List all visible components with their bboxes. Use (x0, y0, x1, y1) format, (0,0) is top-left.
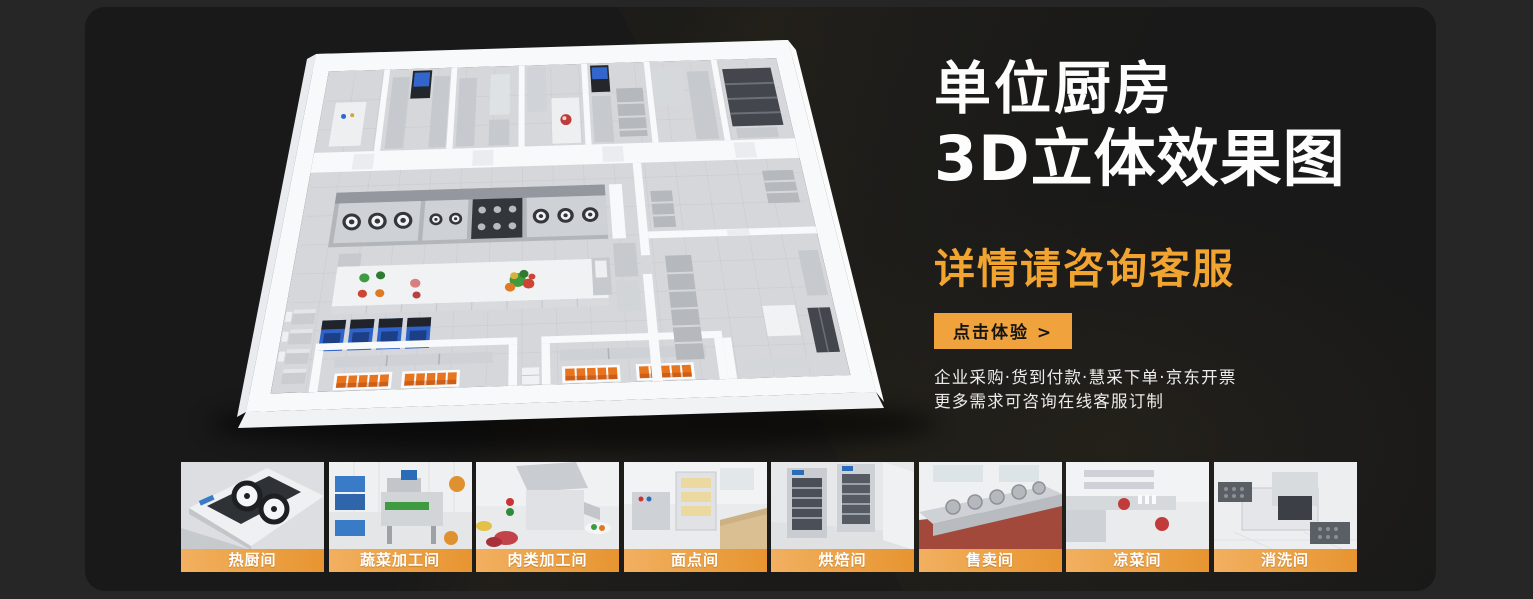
washing-room-art (1214, 462, 1357, 550)
meat-processing-art (476, 462, 619, 550)
thumbnail-label: 售卖间 (919, 549, 1062, 572)
thumbnail-sales-room[interactable]: 售卖间 (919, 462, 1062, 572)
cta-button[interactable]: 点击体验 > (934, 313, 1072, 349)
thumbnail-vegetable-processing[interactable]: 蔬菜加工间 (329, 462, 472, 572)
hero-bullet-line2: 更多需求可咨询在线客服订制 (934, 390, 1414, 414)
hero-bullets: 企业采购·货到付款·慧采下单·京东开票 更多需求可咨询在线客服订制 (934, 366, 1414, 414)
baking-room-art (771, 462, 914, 550)
thumbnail-label: 肉类加工间 (476, 549, 619, 572)
thumbnail-label: 面点间 (624, 549, 767, 572)
room-thumbnail-row: 热厨间 蔬菜加工间 (181, 462, 1357, 572)
thumbnail-label: 热厨间 (181, 549, 324, 572)
thumbnail-label: 蔬菜加工间 (329, 549, 472, 572)
cold-dish-room-art (1066, 462, 1209, 550)
thumbnail-cold-dish-room[interactable]: 凉菜间 (1066, 462, 1209, 572)
hero-title-line1: 单位厨房 (934, 58, 1414, 122)
thumbnail-label: 凉菜间 (1066, 549, 1209, 572)
thumbnail-label: 消洗间 (1214, 549, 1357, 572)
thumbnail-label: 烘焙间 (771, 549, 914, 572)
thumbnail-baking-room[interactable]: 烘焙间 (771, 462, 914, 572)
thumbnail-pastry-room[interactable]: 面点间 (624, 462, 767, 572)
sales-room-art (919, 462, 1062, 550)
pastry-room-art (624, 462, 767, 550)
thumbnail-hot-kitchen[interactable]: 热厨间 (181, 462, 324, 572)
hot-kitchen-art (181, 462, 324, 550)
hero-title-line2: 3D立体效果图 (934, 126, 1414, 193)
hero-bullet-line1: 企业采购·货到付款·慧采下单·京东开票 (934, 366, 1414, 390)
thumbnail-meat-processing[interactable]: 肉类加工间 (476, 462, 619, 572)
vegetable-processing-art (329, 462, 472, 550)
hero-text-block: 单位厨房 3D立体效果图 详情请咨询客服 点击体验 > 企业采购·货到付款·慧采… (934, 58, 1414, 414)
thumbnail-washing-room[interactable]: 消洗间 (1214, 462, 1357, 572)
hero-subtitle: 详情请咨询客服 (934, 235, 1414, 295)
